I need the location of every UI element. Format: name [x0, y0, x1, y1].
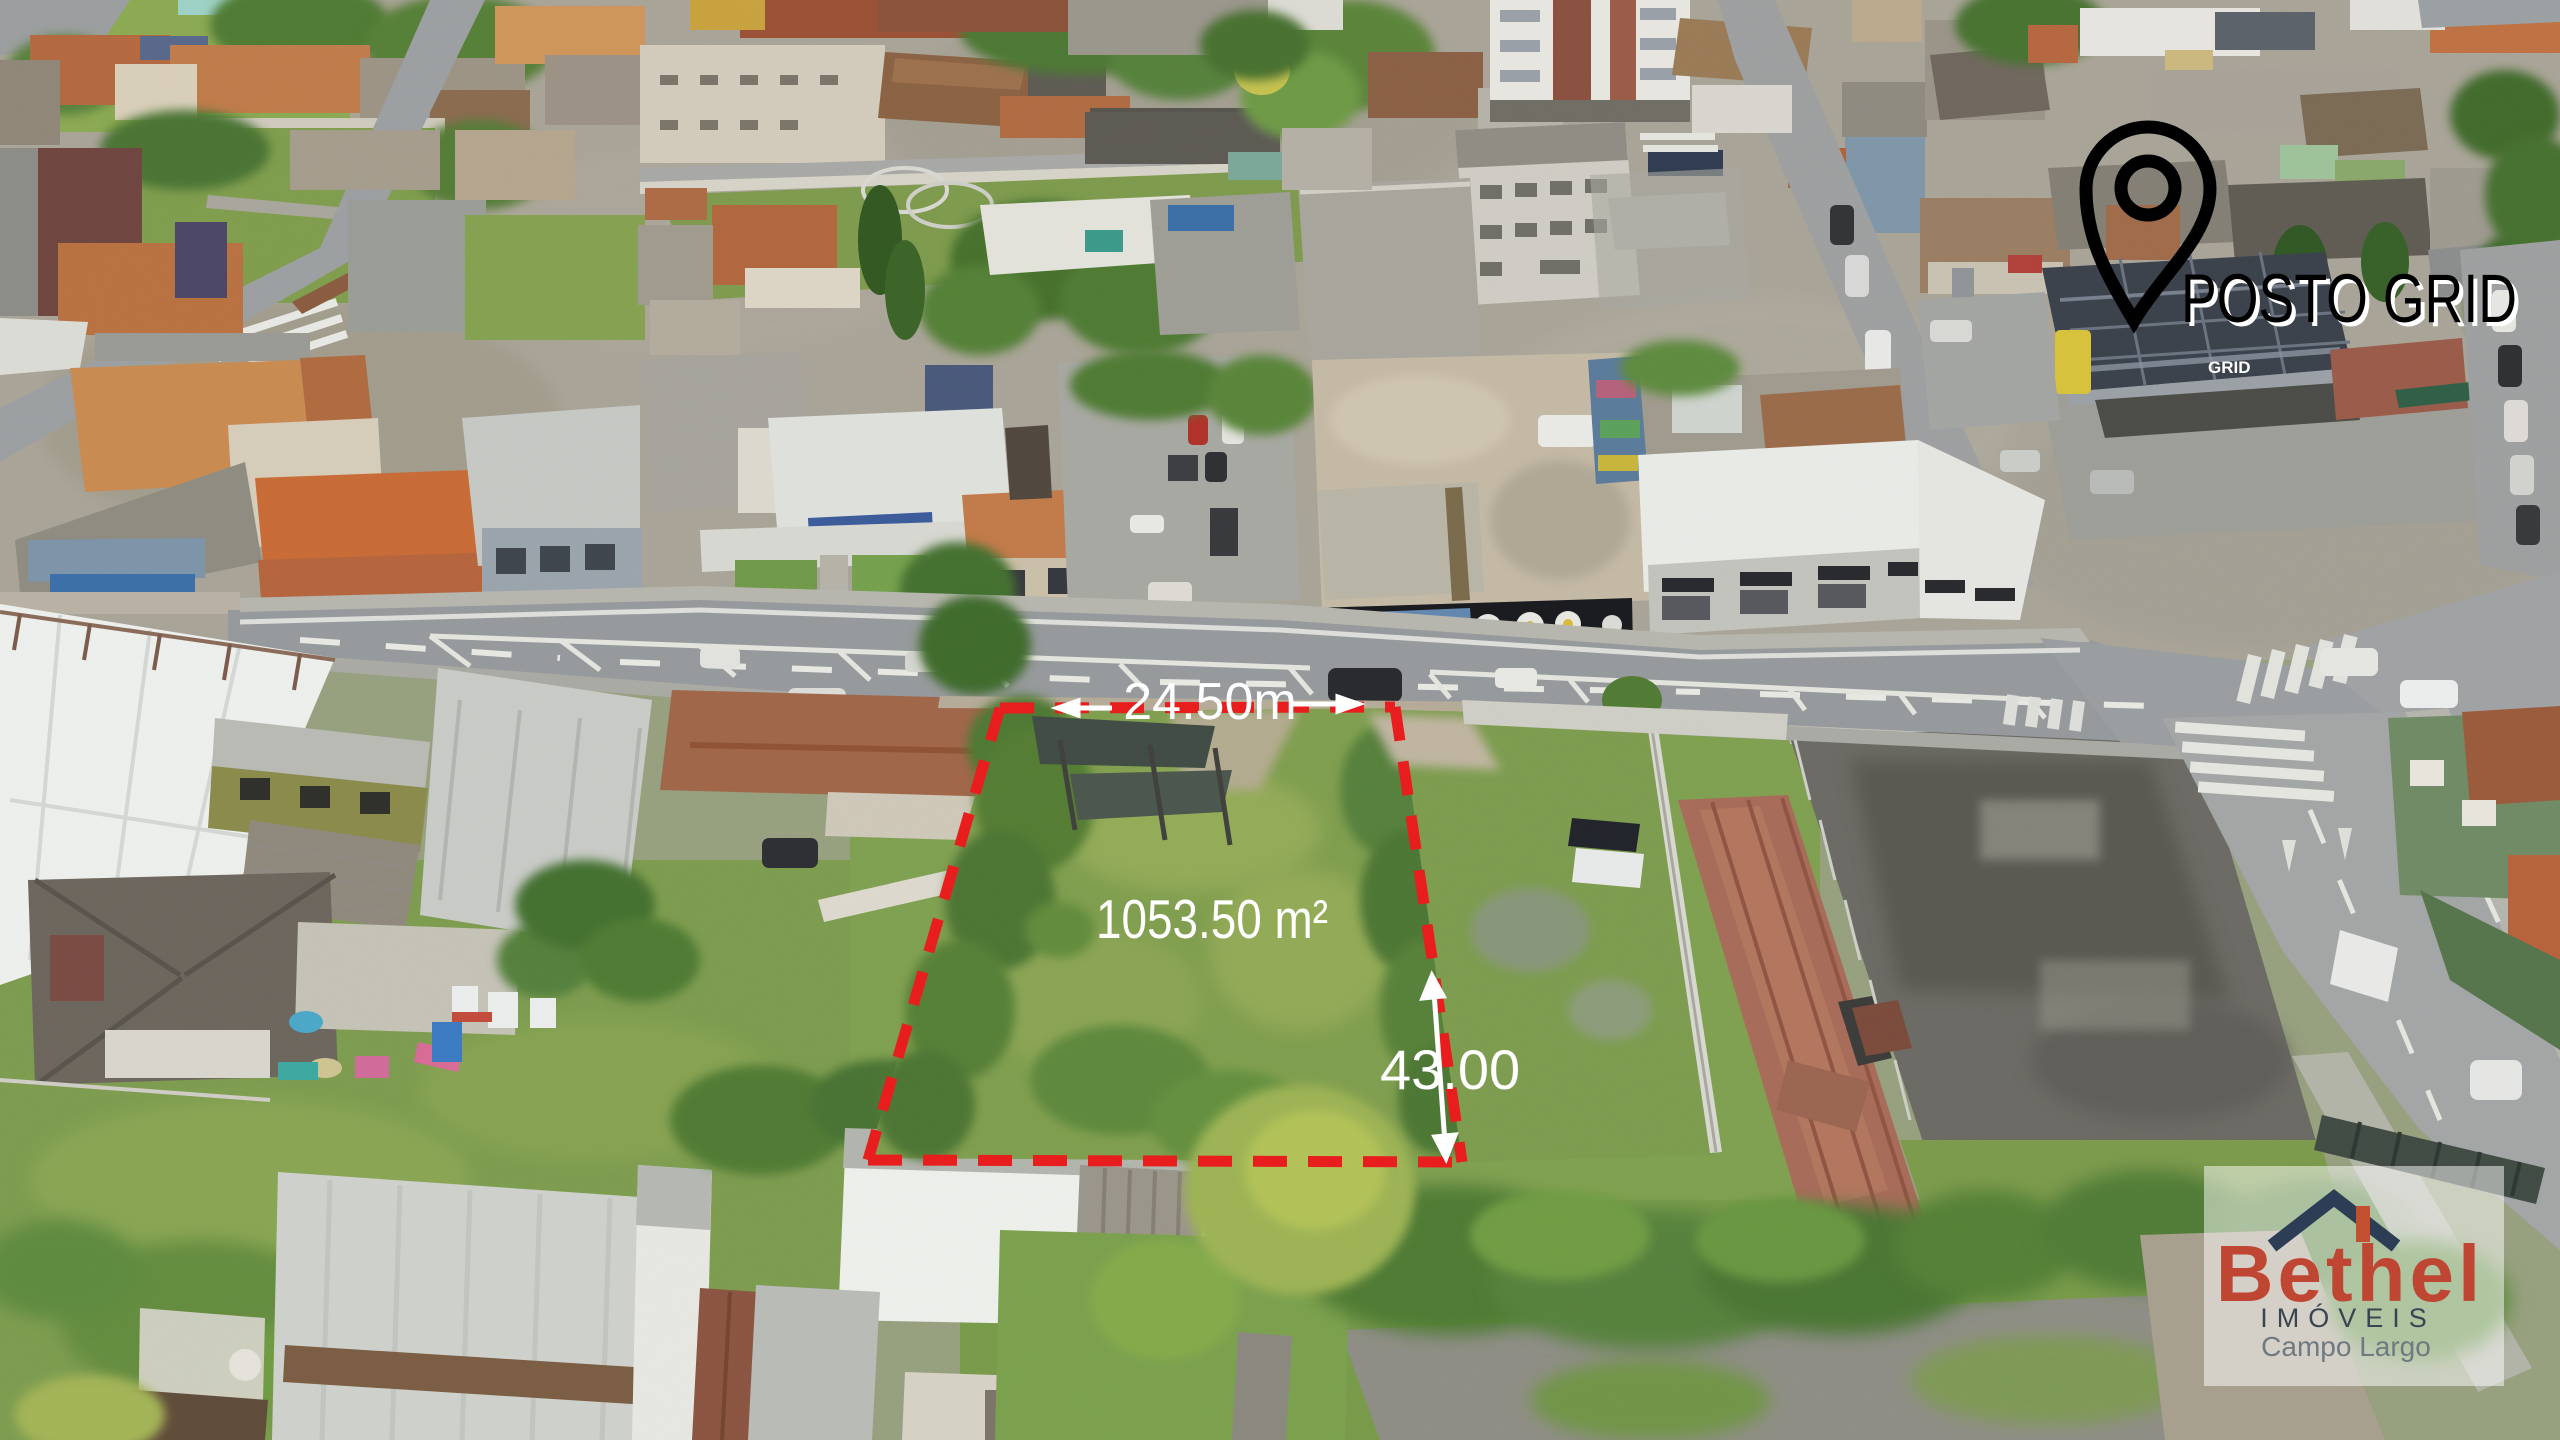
svg-text:43.00: 43.00: [1380, 1038, 1520, 1101]
svg-text:POSTO GRID: POSTO GRID: [2181, 260, 2517, 337]
svg-text:Campo Largo: Campo Largo: [2261, 1331, 2431, 1362]
svg-text:1053.50 m²: 1053.50 m²: [1096, 888, 1328, 950]
svg-text:IMÓVEIS: IMÓVEIS: [2260, 1302, 2436, 1333]
svg-text:24.50m: 24.50m: [1123, 673, 1296, 731]
